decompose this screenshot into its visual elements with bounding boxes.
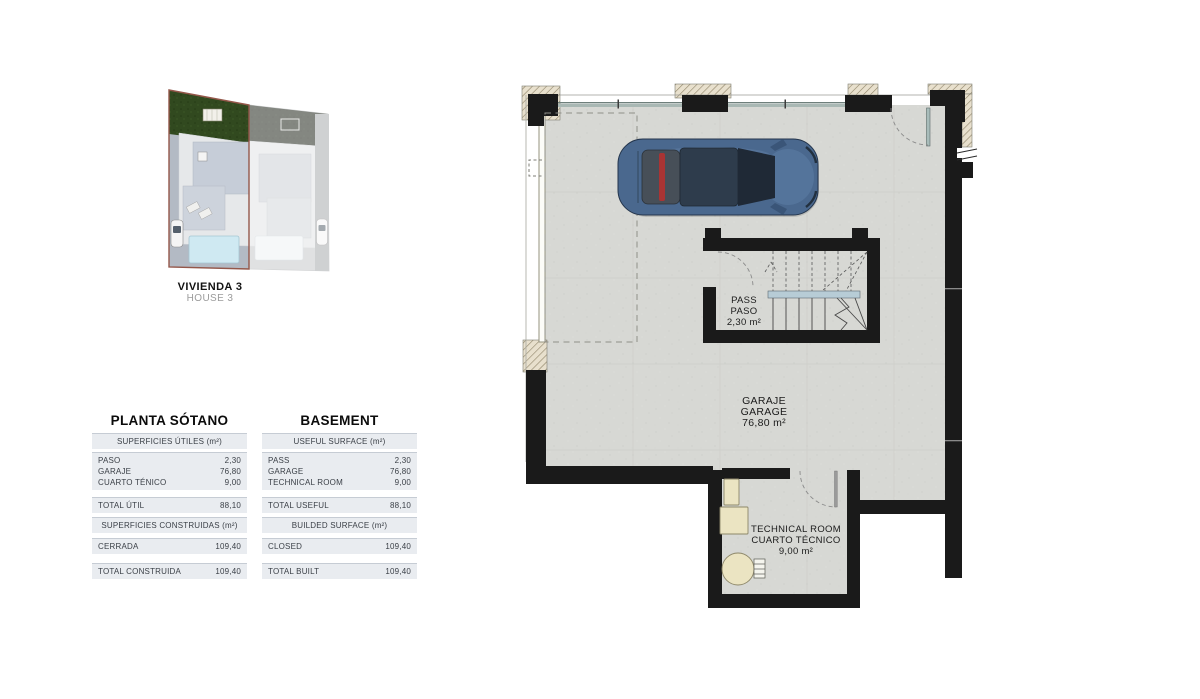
cell-label: CERRADA (98, 539, 139, 554)
page: VIVIENDA 3 HOUSE 3 PLANTA SÓTANO SUPERFI… (0, 0, 1200, 699)
useful-rows-en: PASS2,30 GARAGE76,80 TECHNICAL ROOM9,00 (262, 452, 417, 490)
table-row: TECHNICAL ROOM9,00 (262, 477, 417, 488)
cell-label: PASO (98, 455, 120, 466)
section-header-useful-en: USEFUL SURFACE (m²) (262, 433, 417, 449)
cell-label: PASS (268, 455, 290, 466)
car-windshield (738, 148, 775, 206)
car-vivienda (171, 220, 183, 247)
car-brake-light (659, 153, 665, 201)
garage-area: 76,80 m² (742, 417, 786, 429)
cell-value: 109,40 (215, 539, 241, 554)
car (618, 139, 819, 217)
useful-rows-es: PASO2,30 GARAJE76,80 CUARTO TÉNICO9,00 (92, 452, 247, 490)
site-plot-adjacent (249, 105, 330, 272)
site-plot-vivienda-3 (169, 90, 249, 269)
cell-label: TECHNICAL ROOM (268, 477, 343, 488)
table-row: GARAGE76,80 (262, 466, 417, 477)
pass-area: 2,30 m² (727, 317, 761, 328)
cell-label: TOTAL USEFUL (268, 498, 329, 513)
table-title-es: PLANTA SÓTANO (92, 413, 247, 429)
total-built-row: TOTAL BUILT109,40 (262, 563, 417, 579)
site-plan-graphic (165, 86, 333, 278)
site-plan-thumbnail (165, 86, 333, 278)
cell-value: 88,10 (390, 498, 411, 513)
total-util-row: TOTAL ÚTIL88,10 (92, 497, 247, 513)
cerrada-row: CERRADA109,40 (92, 538, 247, 554)
house-label: HOUSE 3 (150, 293, 270, 305)
cell-label: TOTAL ÚTIL (98, 498, 144, 513)
pass-label-en: PASS (731, 295, 757, 306)
technical-label-es: CUARTO TÉCNICO (751, 535, 840, 546)
cell-label: TOTAL BUILT (268, 564, 319, 579)
table-row: PASO2,30 (92, 455, 247, 466)
cell-label: GARAJE (98, 466, 131, 477)
section-header-built-en: BUILDED SURFACE (m²) (262, 517, 417, 533)
table-planta-sotano: PLANTA SÓTANO SUPERFICIES ÚTILES (m²) PA… (92, 413, 247, 579)
cell-value: 76,80 (220, 466, 241, 477)
cell-label: CUARTO TÉNICO (98, 477, 166, 488)
thumbnail-caption: VIVIENDA 3 HOUSE 3 (150, 281, 270, 305)
pool (189, 236, 239, 263)
cell-value: 9,00 (395, 477, 411, 488)
stair-landing (768, 291, 860, 298)
table-basement: BASEMENT USEFUL SURFACE (m²) PASS2,30 GA… (262, 413, 417, 579)
pass-label-es: PASO (731, 306, 758, 317)
cell-label: CLOSED (268, 539, 302, 554)
total-useful-row: TOTAL USEFUL88,10 (262, 497, 417, 513)
table-title-en: BASEMENT (262, 413, 417, 429)
vivienda-label: VIVIENDA 3 (150, 281, 270, 293)
table-row: GARAJE76,80 (92, 466, 247, 477)
cell-value: 2,30 (395, 455, 411, 466)
section-header-built-es: SUPERFICIES CONSTRUIDAS (m²) (92, 517, 247, 533)
section-header-useful-es: SUPERFICIES ÚTILES (m²) (92, 433, 247, 449)
cell-value: 109,40 (215, 564, 241, 579)
cell-value: 2,30 (225, 455, 241, 466)
cell-label: TOTAL CONSTRUIDA (98, 564, 181, 579)
basement-floor-plan: PASS PASO 2,30 m² GARAJE GARAGE 76,80 m²… (515, 82, 990, 642)
total-construida-row: TOTAL CONSTRUIDA109,40 (92, 563, 247, 579)
car-roof (680, 148, 738, 206)
closed-row: CLOSED109,40 (262, 538, 417, 554)
technical-area: 9,00 m² (779, 546, 813, 557)
cell-label: GARAGE (268, 466, 303, 477)
cell-value: 9,00 (225, 477, 241, 488)
cell-value: 109,40 (385, 539, 411, 554)
table-row: PASS2,30 (262, 455, 417, 466)
cell-value: 76,80 (390, 466, 411, 477)
table-row: CUARTO TÉNICO9,00 (92, 477, 247, 488)
cell-value: 88,10 (220, 498, 241, 513)
floor-plan-graphic: PASS PASO 2,30 m² GARAJE GARAGE 76,80 m²… (515, 82, 990, 642)
technical-label-en: TECHNICAL ROOM (751, 524, 841, 535)
cell-value: 109,40 (385, 564, 411, 579)
